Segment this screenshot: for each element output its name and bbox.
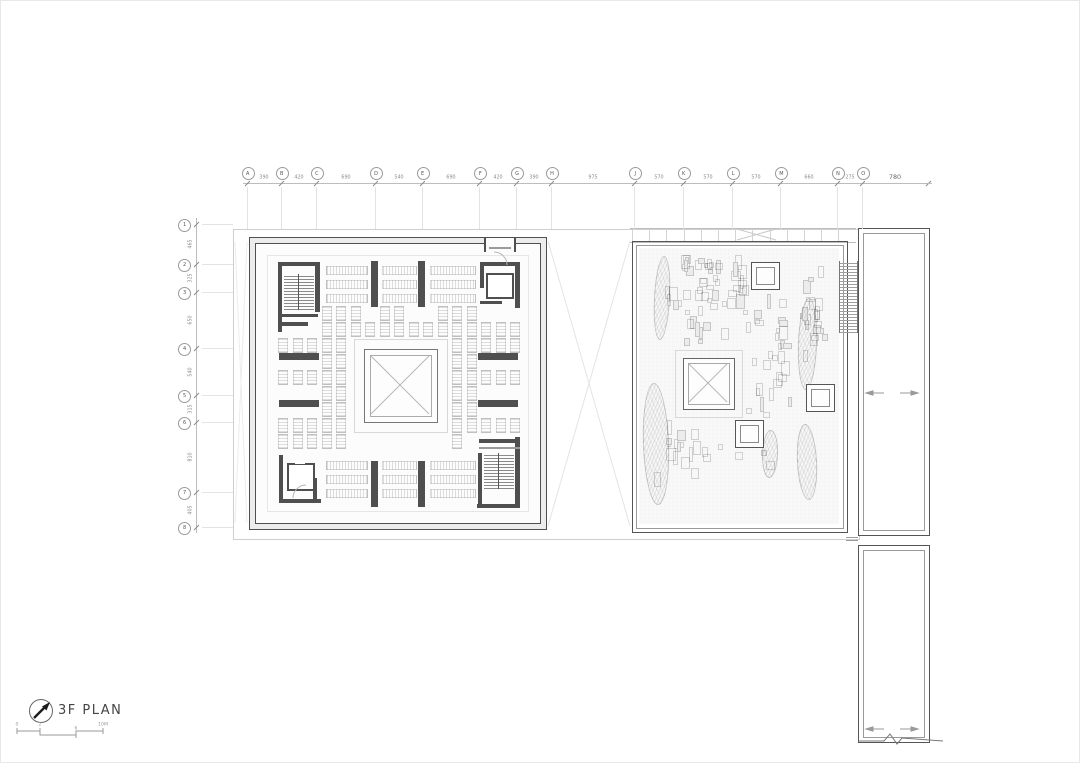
door-swing-arc (293, 252, 507, 498)
scale-label: 10M (98, 721, 108, 726)
direction-arrows-lower (866, 727, 918, 731)
linework-overlay (0, 0, 1080, 763)
page-title: 3F PLAN (58, 703, 122, 718)
scale-label: 6 (75, 725, 78, 730)
drawing-sheet: ABCDEFGHJKLMNO39042069054069042039097557… (0, 0, 1080, 763)
scale-label: 0 (16, 721, 19, 726)
direction-arrows-upper (866, 391, 918, 395)
atrium-diagonals (371, 356, 429, 414)
skylight-diagonals (689, 364, 727, 402)
construction-lines-left (235, 242, 247, 523)
construction-lines-connector (548, 241, 630, 526)
scale-bar (17, 728, 103, 738)
walkway-cross (737, 229, 776, 240)
scale-label: 2 (39, 721, 42, 726)
north-arrow-icon (30, 700, 53, 723)
section-break-zigzag (858, 734, 943, 744)
